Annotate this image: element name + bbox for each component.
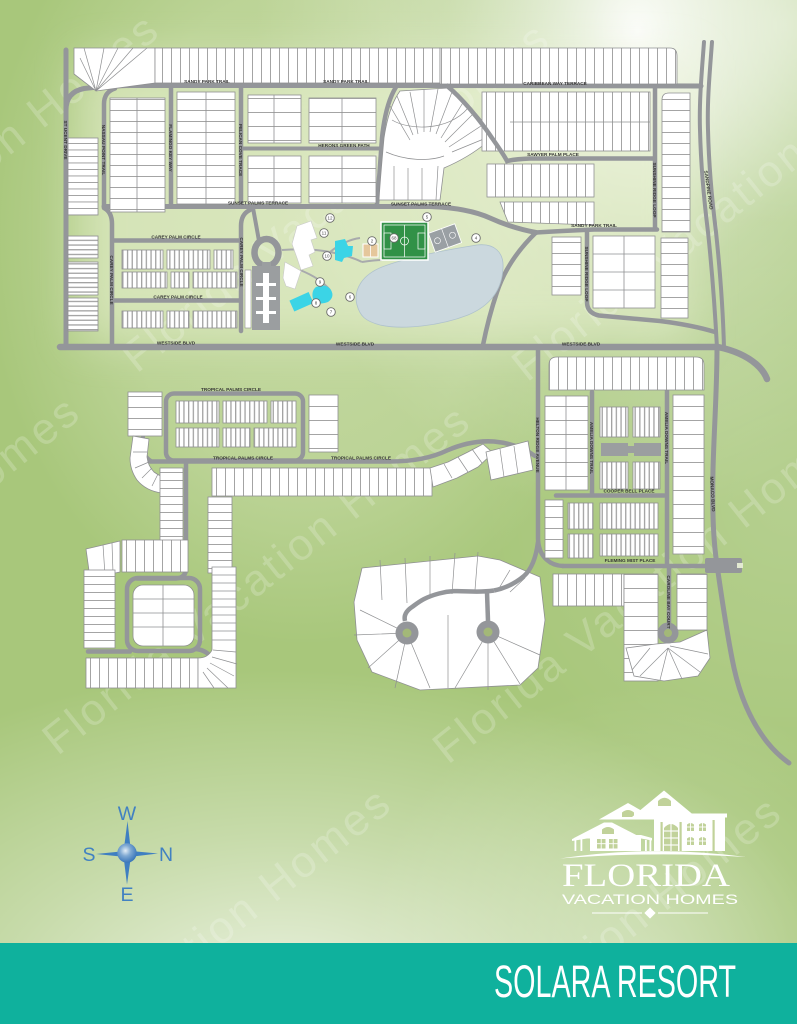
svg-text:WESTSIDE BLVD: WESTSIDE BLVD [336,342,375,347]
svg-text:CAREY PALM CIRCLE: CAREY PALM CIRCLE [151,235,200,240]
svg-text:S: S [82,844,95,866]
svg-text:FLAMINGO KEY WAY: FLAMINGO KEY WAY [168,124,173,172]
svg-text:E: E [120,884,133,906]
svg-text:W: W [118,803,137,825]
svg-text:SUNSHINE RIDGE LOOP: SUNSHINE RIDGE LOOP [584,247,589,302]
svg-text:SOLARA RESORT: SOLARA RESORT [494,956,736,1007]
svg-text:COOPER BELL PLACE: COOPER BELL PLACE [604,489,655,494]
svg-text:SANDY PARK TRAIL: SANDY PARK TRAIL [323,79,369,84]
svg-text:CAREY PALM CIRCLE: CAREY PALM CIRCLE [239,237,244,286]
svg-text:SANDY PARK TRAIL: SANDY PARK TRAIL [571,223,617,228]
svg-text:N: N [159,844,173,866]
svg-text:SANDY PARK TRAIL: SANDY PARK TRAIL [184,79,230,84]
svg-text:SUNSET PALMS TERRACE: SUNSET PALMS TERRACE [228,201,288,206]
svg-text:SAWYER PALM PLACE: SAWYER PALM PLACE [527,152,579,157]
svg-text:WESTSIDE BLVD: WESTSIDE BLVD [157,341,196,346]
svg-text:FLEMING MIST PLACE: FLEMING MIST PLACE [605,558,656,563]
svg-text:AMELIA DOWNS TRAIL: AMELIA DOWNS TRAIL [589,422,594,474]
svg-text:CARIBBEAN WAY TERRACE: CARIBBEAN WAY TERRACE [523,81,587,86]
svg-text:12: 12 [327,216,333,221]
svg-text:AMELIA DOWNS TRAIL: AMELIA DOWNS TRAIL [664,412,669,464]
svg-text:ST UCENT DRIVE: ST UCENT DRIVE [63,120,68,159]
svg-text:CAREY PALM CIRCLE: CAREY PALM CIRCLE [109,255,114,304]
svg-text:TROPICAL PALMS CIRCLE: TROPICAL PALMS CIRCLE [213,456,273,461]
svg-text:TROPICAL PALMS CIRCLE: TROPICAL PALMS CIRCLE [331,456,391,461]
svg-text:SUNSHINE RIDGE LOOP: SUNSHINE RIDGE LOOP [652,163,657,218]
svg-text:HERONS GREEN PATH: HERONS GREEN PATH [318,143,370,148]
svg-text:WESTSIDE BLVD: WESTSIDE BLVD [562,342,601,347]
svg-text:10: 10 [324,254,330,259]
svg-text:CAROLINE BAY COURT: CAROLINE BAY COURT [666,575,671,628]
svg-text:VACATION HOMES: VACATION HOMES [562,891,738,907]
svg-text:SUNSET PALMS TERRACE: SUNSET PALMS TERRACE [391,202,451,207]
svg-text:68: 68 [391,236,397,241]
svg-text:CAREY PALM CIRCLE: CAREY PALM CIRCLE [153,295,202,300]
svg-text:TROPICAL PALMS CIRCLE: TROPICAL PALMS CIRCLE [201,387,261,392]
svg-text:11: 11 [322,231,327,236]
svg-text:NASSAU POINT TRAIL: NASSAU POINT TRAIL [101,125,106,176]
svg-text:PELICAN COVE TRACE: PELICAN COVE TRACE [238,124,243,177]
svg-text:FLORIDA: FLORIDA [562,858,730,894]
svg-text:HELTON RIDGE AVENUE: HELTON RIDGE AVENUE [535,417,540,472]
